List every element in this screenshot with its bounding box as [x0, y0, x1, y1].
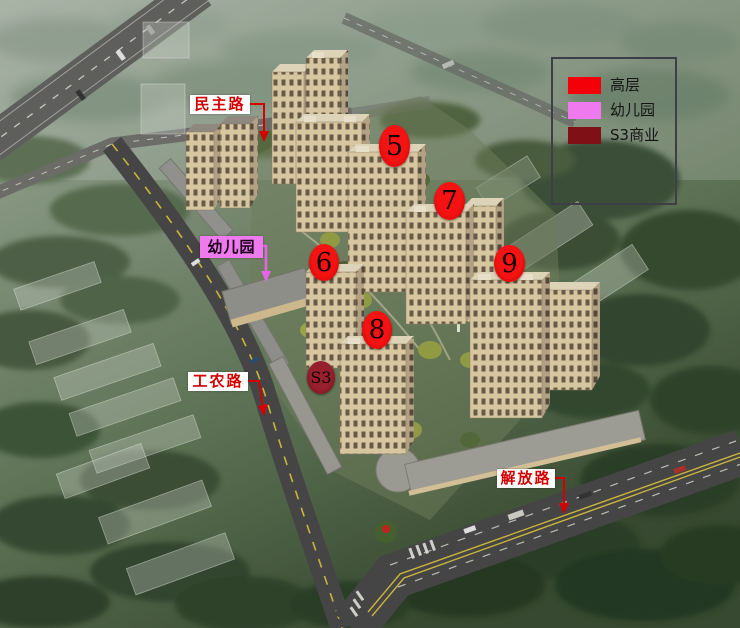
legend-label-highrise: 高层 — [610, 77, 640, 94]
road-label-gongnong: 工农路 — [188, 372, 248, 391]
building-marker-s3: S3 — [307, 361, 335, 394]
tower-9 — [470, 272, 550, 418]
legend-item-s3-commercial: S3商业 — [568, 127, 675, 144]
building-marker-9: 9 — [494, 245, 525, 282]
facility-label-kindergarten: 幼儿园 — [200, 236, 263, 258]
building-marker-8: 8 — [362, 311, 392, 349]
legend: 高层 幼儿园 S3商业 — [551, 57, 677, 205]
road-label-jiefang: 解放路 — [497, 469, 555, 488]
aerial-site-plan: 民主路 幼儿园 工农路 解放路 5 7 9 6 8 S3 高层 幼儿园 S3商业 — [0, 0, 740, 628]
legend-swatch-s3-commercial — [568, 127, 601, 144]
road-label-minzhu: 民主路 — [190, 95, 250, 114]
tower-nw-1 — [186, 124, 222, 210]
tower-nw-2 — [220, 116, 258, 208]
building-marker-5: 5 — [379, 125, 410, 167]
legend-item-kindergarten: 幼儿园 — [568, 102, 675, 119]
legend-label-kindergarten: 幼儿园 — [610, 102, 655, 119]
legend-swatch-kindergarten — [568, 102, 601, 119]
tower-7 — [406, 204, 474, 324]
legend-item-highrise: 高层 — [568, 77, 675, 94]
tower-9b — [542, 282, 600, 390]
building-marker-7: 7 — [434, 182, 465, 220]
legend-label-s3-commercial: S3商业 — [610, 127, 659, 144]
entry-sculpture — [382, 525, 390, 533]
legend-swatch-highrise — [568, 77, 601, 94]
building-marker-6: 6 — [309, 244, 339, 281]
tower-8 — [340, 336, 414, 454]
